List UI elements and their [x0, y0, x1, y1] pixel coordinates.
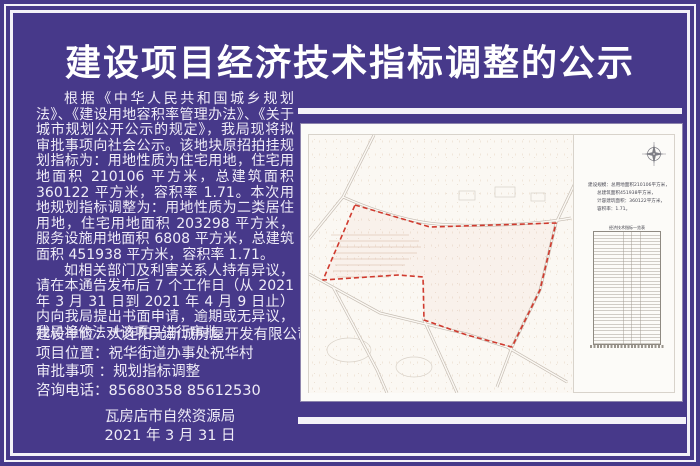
info-line-construction-unit: 建设单位：大连阳光新城房屋开发有限公司 [36, 326, 306, 345]
scale-line-1: 建设规模：总用地面积210106平方米， [588, 182, 672, 190]
notice-paragraph-1: 根据《中华人民共和国城乡规划法》、《建设用地容积率管理办法》、《关于城市规划公开… [36, 92, 294, 264]
info-line-approval-item: 审批事项 ：规划指标调整 [36, 363, 306, 382]
decorative-bar-top [298, 108, 682, 114]
scale-line-2: 总建筑面积451938平方米， [588, 190, 672, 198]
site-plan-map [309, 135, 573, 393]
site-plan-drawing [309, 135, 573, 393]
scale-line-4: 容积率：1.71。 [588, 206, 672, 214]
indicator-table-grid [593, 231, 661, 345]
indicator-table-footnote [590, 345, 664, 348]
issue-date: 2021 年 3 月 31 日 [50, 427, 290, 446]
info-line-phone: 咨询电话：85680358 85612530 [36, 382, 306, 401]
compass-icon [642, 142, 666, 166]
map-legend-column: 建设规模：总用地面积210106平方米， 总建筑面积451938平方米， 计容建… [573, 135, 675, 393]
decorative-bar-bottom [298, 417, 686, 424]
info-line-project-location: 项目位置：祝华街道办事处祝华村 [36, 345, 306, 364]
site-plan-panel: 建设规模：总用地面积210106平方米， 总建筑面积451938平方米， 计容建… [301, 124, 682, 401]
project-info-list: 建设单位：大连阳光新城房屋开发有限公司 项目位置：祝华街道办事处祝华村 审批事项… [36, 326, 306, 400]
public-notice-poster: { "poster": { "title": "建设项目经济技术指标调整的公示"… [0, 0, 700, 466]
notice-body: 根据《中华人民共和国城乡规划法》、《建设用地容积率管理办法》、《关于城市规划公开… [36, 92, 294, 342]
construction-scale-note: 建设规模：总用地面积210106平方米， 总建筑面积451938平方米， 计容建… [588, 182, 672, 214]
plot-boundary-red-dashed [323, 205, 556, 347]
scale-line-3: 计容建筑面积：360122平方米， [588, 198, 672, 206]
issuer-org: 瓦房店市自然资源局 [50, 408, 290, 427]
issuer-block: 瓦房店市自然资源局 2021 年 3 月 31 日 [50, 408, 290, 446]
indicator-table: 经济技术指标一览表 [593, 225, 661, 345]
page-title: 建设项目经济技术指标调整的公示 [0, 34, 700, 86]
